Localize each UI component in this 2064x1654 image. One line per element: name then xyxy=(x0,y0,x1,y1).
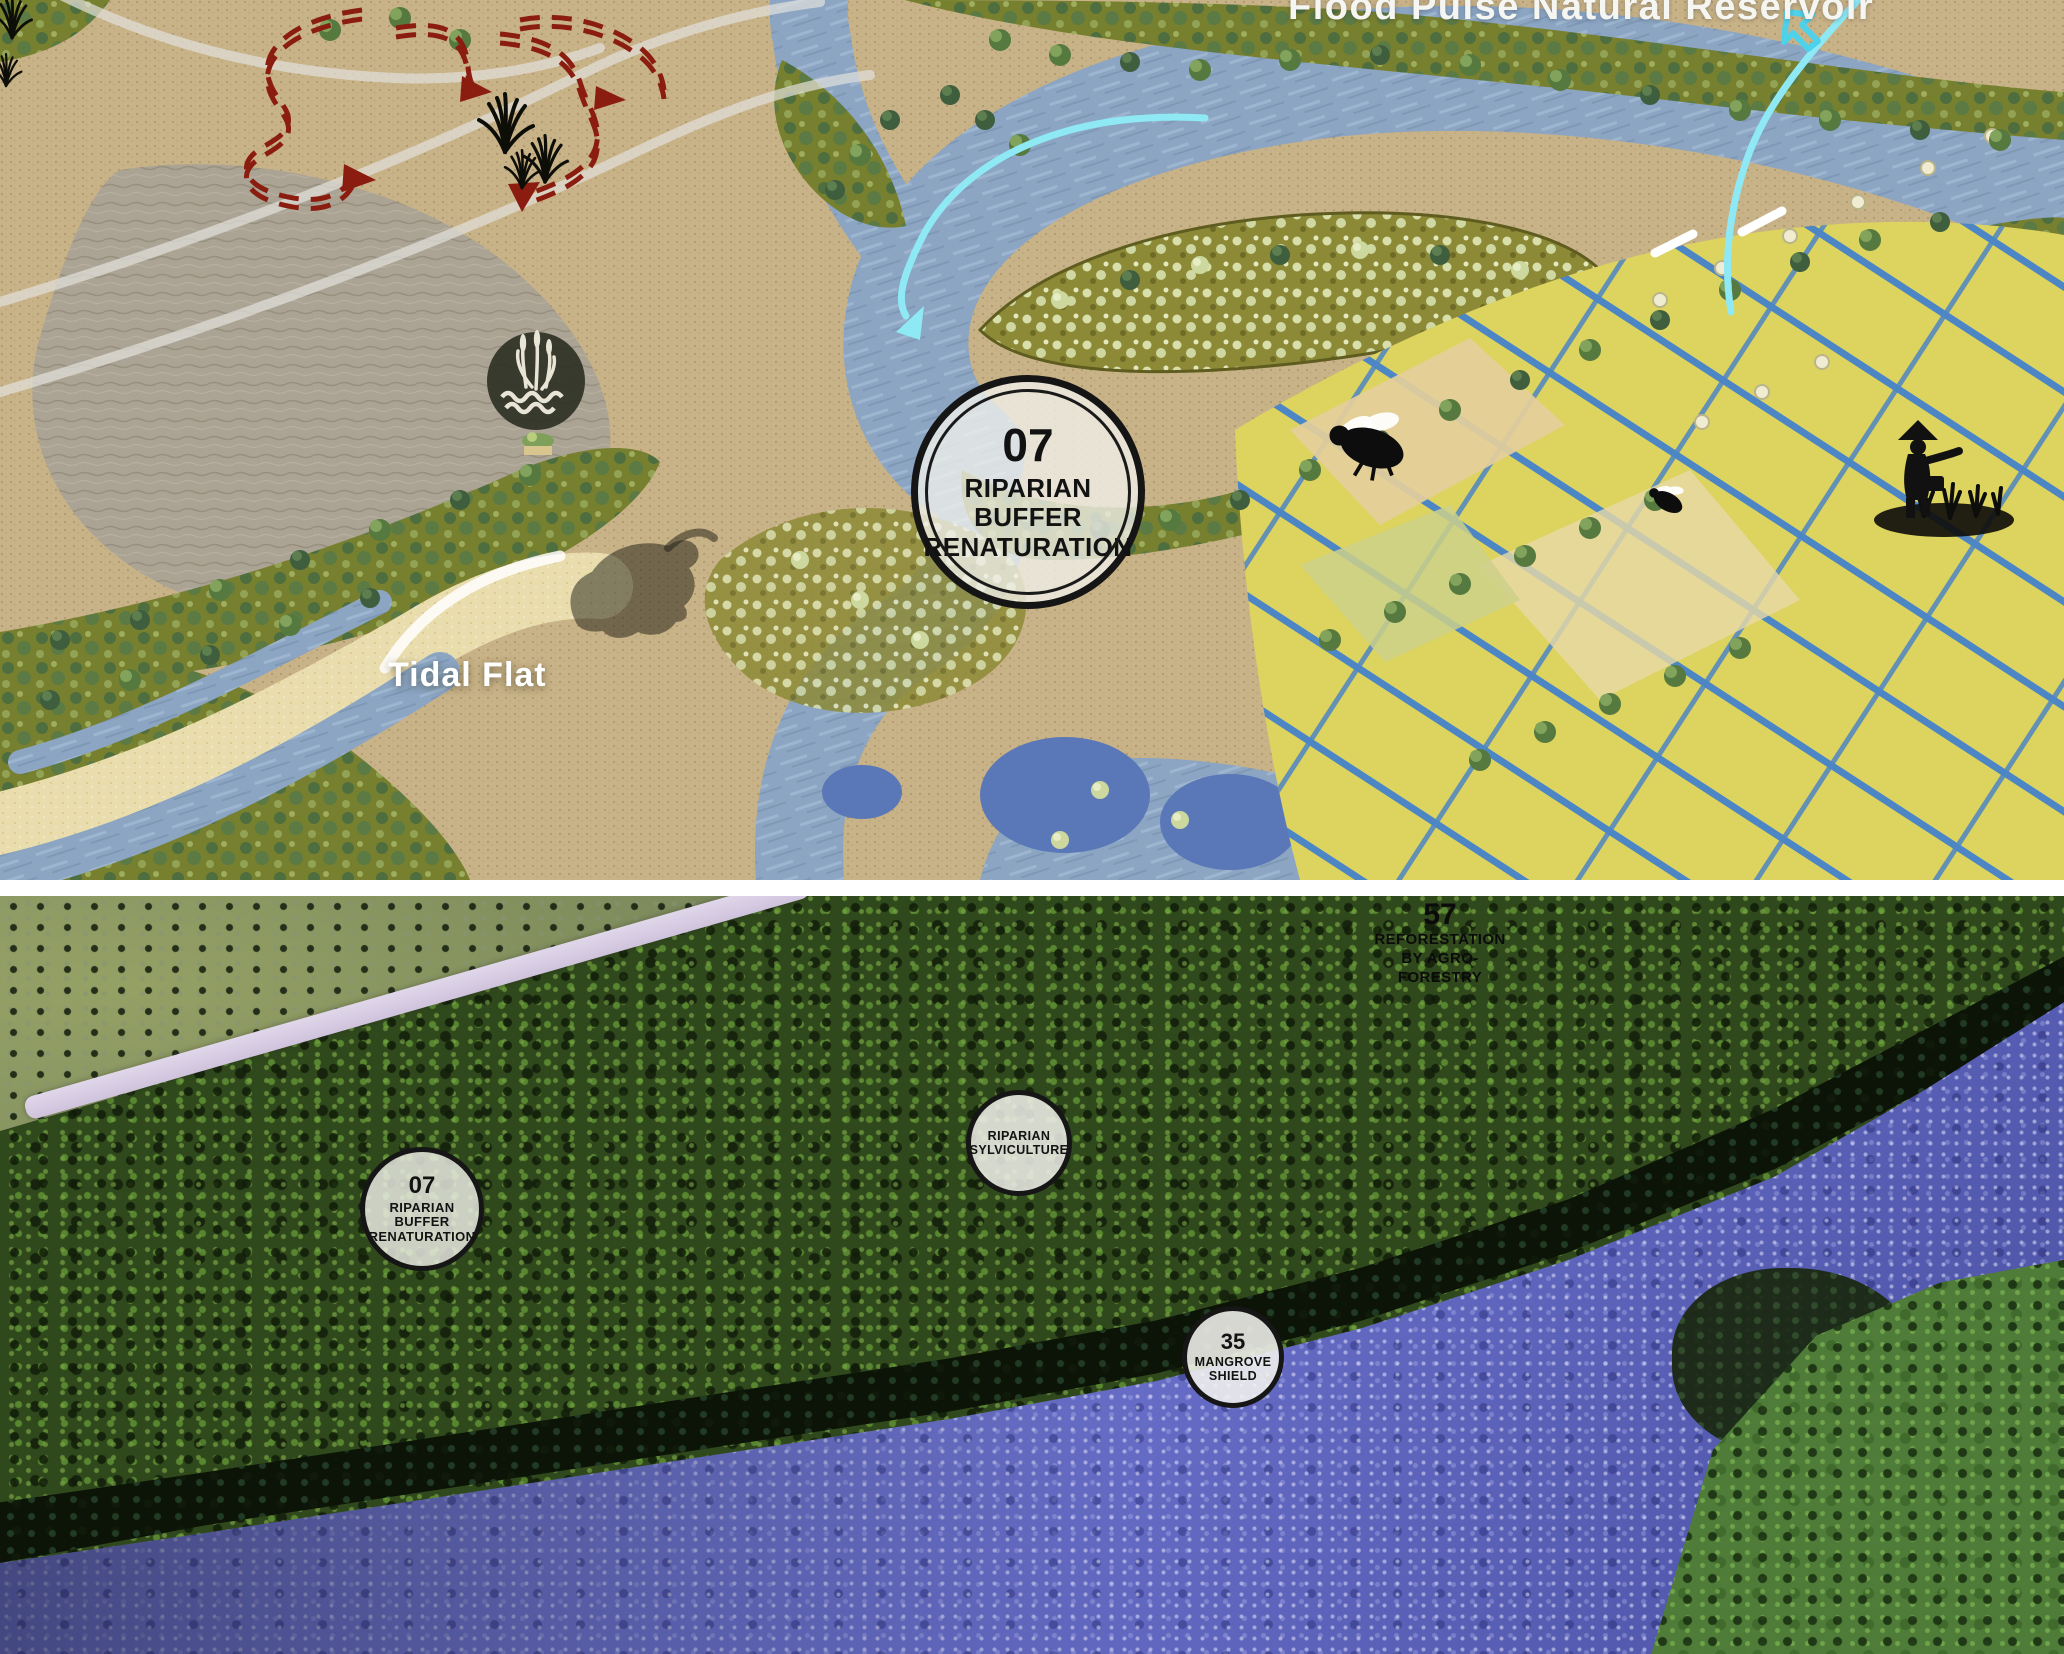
annotation-line: BY AGRO- xyxy=(1310,950,1570,969)
badge-line: RIPARIAN xyxy=(988,1129,1051,1143)
badge-line: MANGROVE xyxy=(1195,1355,1272,1369)
perspective-render-panel: 57 REFORESTATION BY AGRO- FORESTRY 07 RI… xyxy=(0,896,2064,1654)
badge-riparian-buffer-renaturation: 07 RIPARIAN BUFFER RENATURATION xyxy=(911,375,1145,609)
badge-line: SHIELD xyxy=(1209,1369,1257,1383)
tidal-flat-label: Tidal Flat xyxy=(388,656,547,695)
badge-line: RIPARIAN xyxy=(389,1201,454,1216)
annotation-line: FORESTRY xyxy=(1310,969,1570,988)
annotation-number: 57 xyxy=(1310,898,1570,931)
annotation-line: REFORESTATION xyxy=(1310,931,1570,950)
landscape-masterplan-figure: { "top_panel": { "reservoir_label": "Flo… xyxy=(0,0,2064,1654)
badge-riparian-sylviculture: RIPARIAN SYLVICULTURE xyxy=(966,1090,1072,1196)
badge-line: BUFFER xyxy=(394,1215,449,1230)
reservoir-label: Flood Pulse Natural Reservoir xyxy=(1288,0,1874,29)
badge-line: RIPARIAN xyxy=(965,474,1092,503)
badge-mangrove-shield: 35 MANGROVE SHIELD xyxy=(1182,1306,1284,1408)
badge-number: 07 xyxy=(409,1174,436,1198)
badge-line: SYLVICULTURE xyxy=(970,1143,1069,1157)
badge-line: RENATURATION xyxy=(924,533,1133,562)
badge-riparian-buffer-renaturation-perspective: 07 RIPARIAN BUFFER RENATURATION xyxy=(360,1147,484,1271)
badge-line: RENATURATION xyxy=(369,1230,476,1245)
plan-view-panel: Flood Pulse Natural Reservoir Tidal Flat… xyxy=(0,0,2064,880)
badge-number: 35 xyxy=(1221,1331,1245,1353)
annotation-reforestation-agroforestry: 57 REFORESTATION BY AGRO- FORESTRY xyxy=(1310,898,1570,987)
badge-line: BUFFER xyxy=(974,503,1082,532)
badge-number: 07 xyxy=(1002,422,1053,468)
